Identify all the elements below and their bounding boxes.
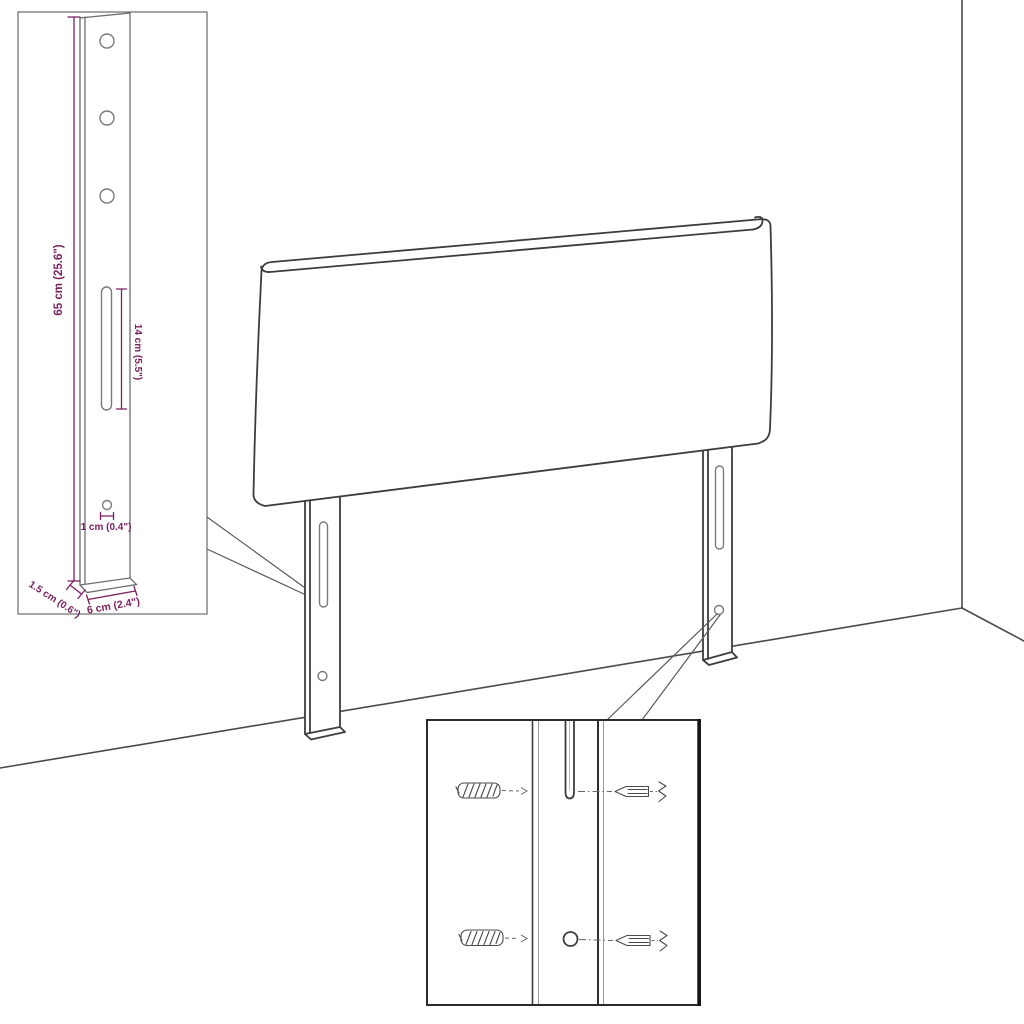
diagram-svg: 65 cm (25.6") 14 cm (5.5") 1 cm (0.4") 1…: [0, 0, 1024, 1024]
right-leg-slot: [716, 466, 724, 549]
mounting-detail-inset: [427, 719, 700, 1006]
headboard-panel-outline: [253, 219, 771, 506]
callout-line: [642, 615, 720, 720]
bracket-slot: [102, 287, 112, 410]
headboard-panel: [253, 217, 771, 506]
bracket-hole-middle: [100, 111, 114, 125]
dim-height-label: 65 cm (25.6"): [53, 244, 65, 315]
dim-hole-label: 1 cm (0.4"): [81, 522, 132, 533]
bracket-small-hole: [103, 501, 112, 510]
right-leg-hole: [715, 606, 724, 615]
mounting-detail-box: [427, 720, 700, 1005]
headboard-assembly-diagram: 65 cm (25.6") 14 cm (5.5") 1 cm (0.4") 1…: [0, 0, 1024, 1024]
dim-slot-label: 14 cm (5.5"): [132, 324, 143, 380]
callout-line: [207, 549, 306, 595]
inset-callout-lines: [207, 517, 308, 595]
left-leg-slot: [320, 522, 328, 607]
floor-line-right: [962, 608, 1024, 641]
bracket-hole-top: [100, 34, 114, 48]
bracket-detail-inset: 65 cm (25.6") 14 cm (5.5") 1 cm (0.4") 1…: [18, 12, 207, 621]
callout-line: [207, 517, 308, 590]
callout-line: [607, 614, 717, 720]
bracket-hole-lower: [100, 189, 114, 203]
right-leg: [703, 418, 737, 665]
left-leg-hole: [318, 672, 327, 681]
